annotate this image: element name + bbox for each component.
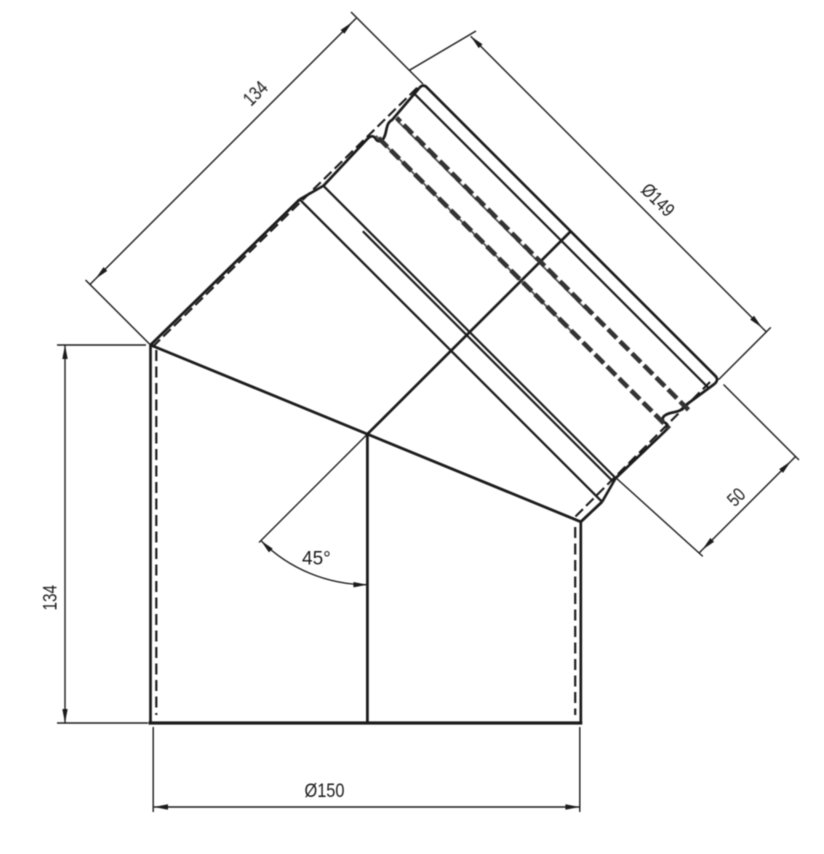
svg-text:Ø150: Ø150 (305, 781, 345, 802)
svg-text:50: 50 (724, 485, 751, 512)
svg-text:Ø149: Ø149 (636, 180, 678, 222)
svg-text:45°: 45° (302, 549, 331, 570)
svg-text:134: 134 (41, 585, 62, 611)
svg-text:134: 134 (240, 77, 273, 110)
